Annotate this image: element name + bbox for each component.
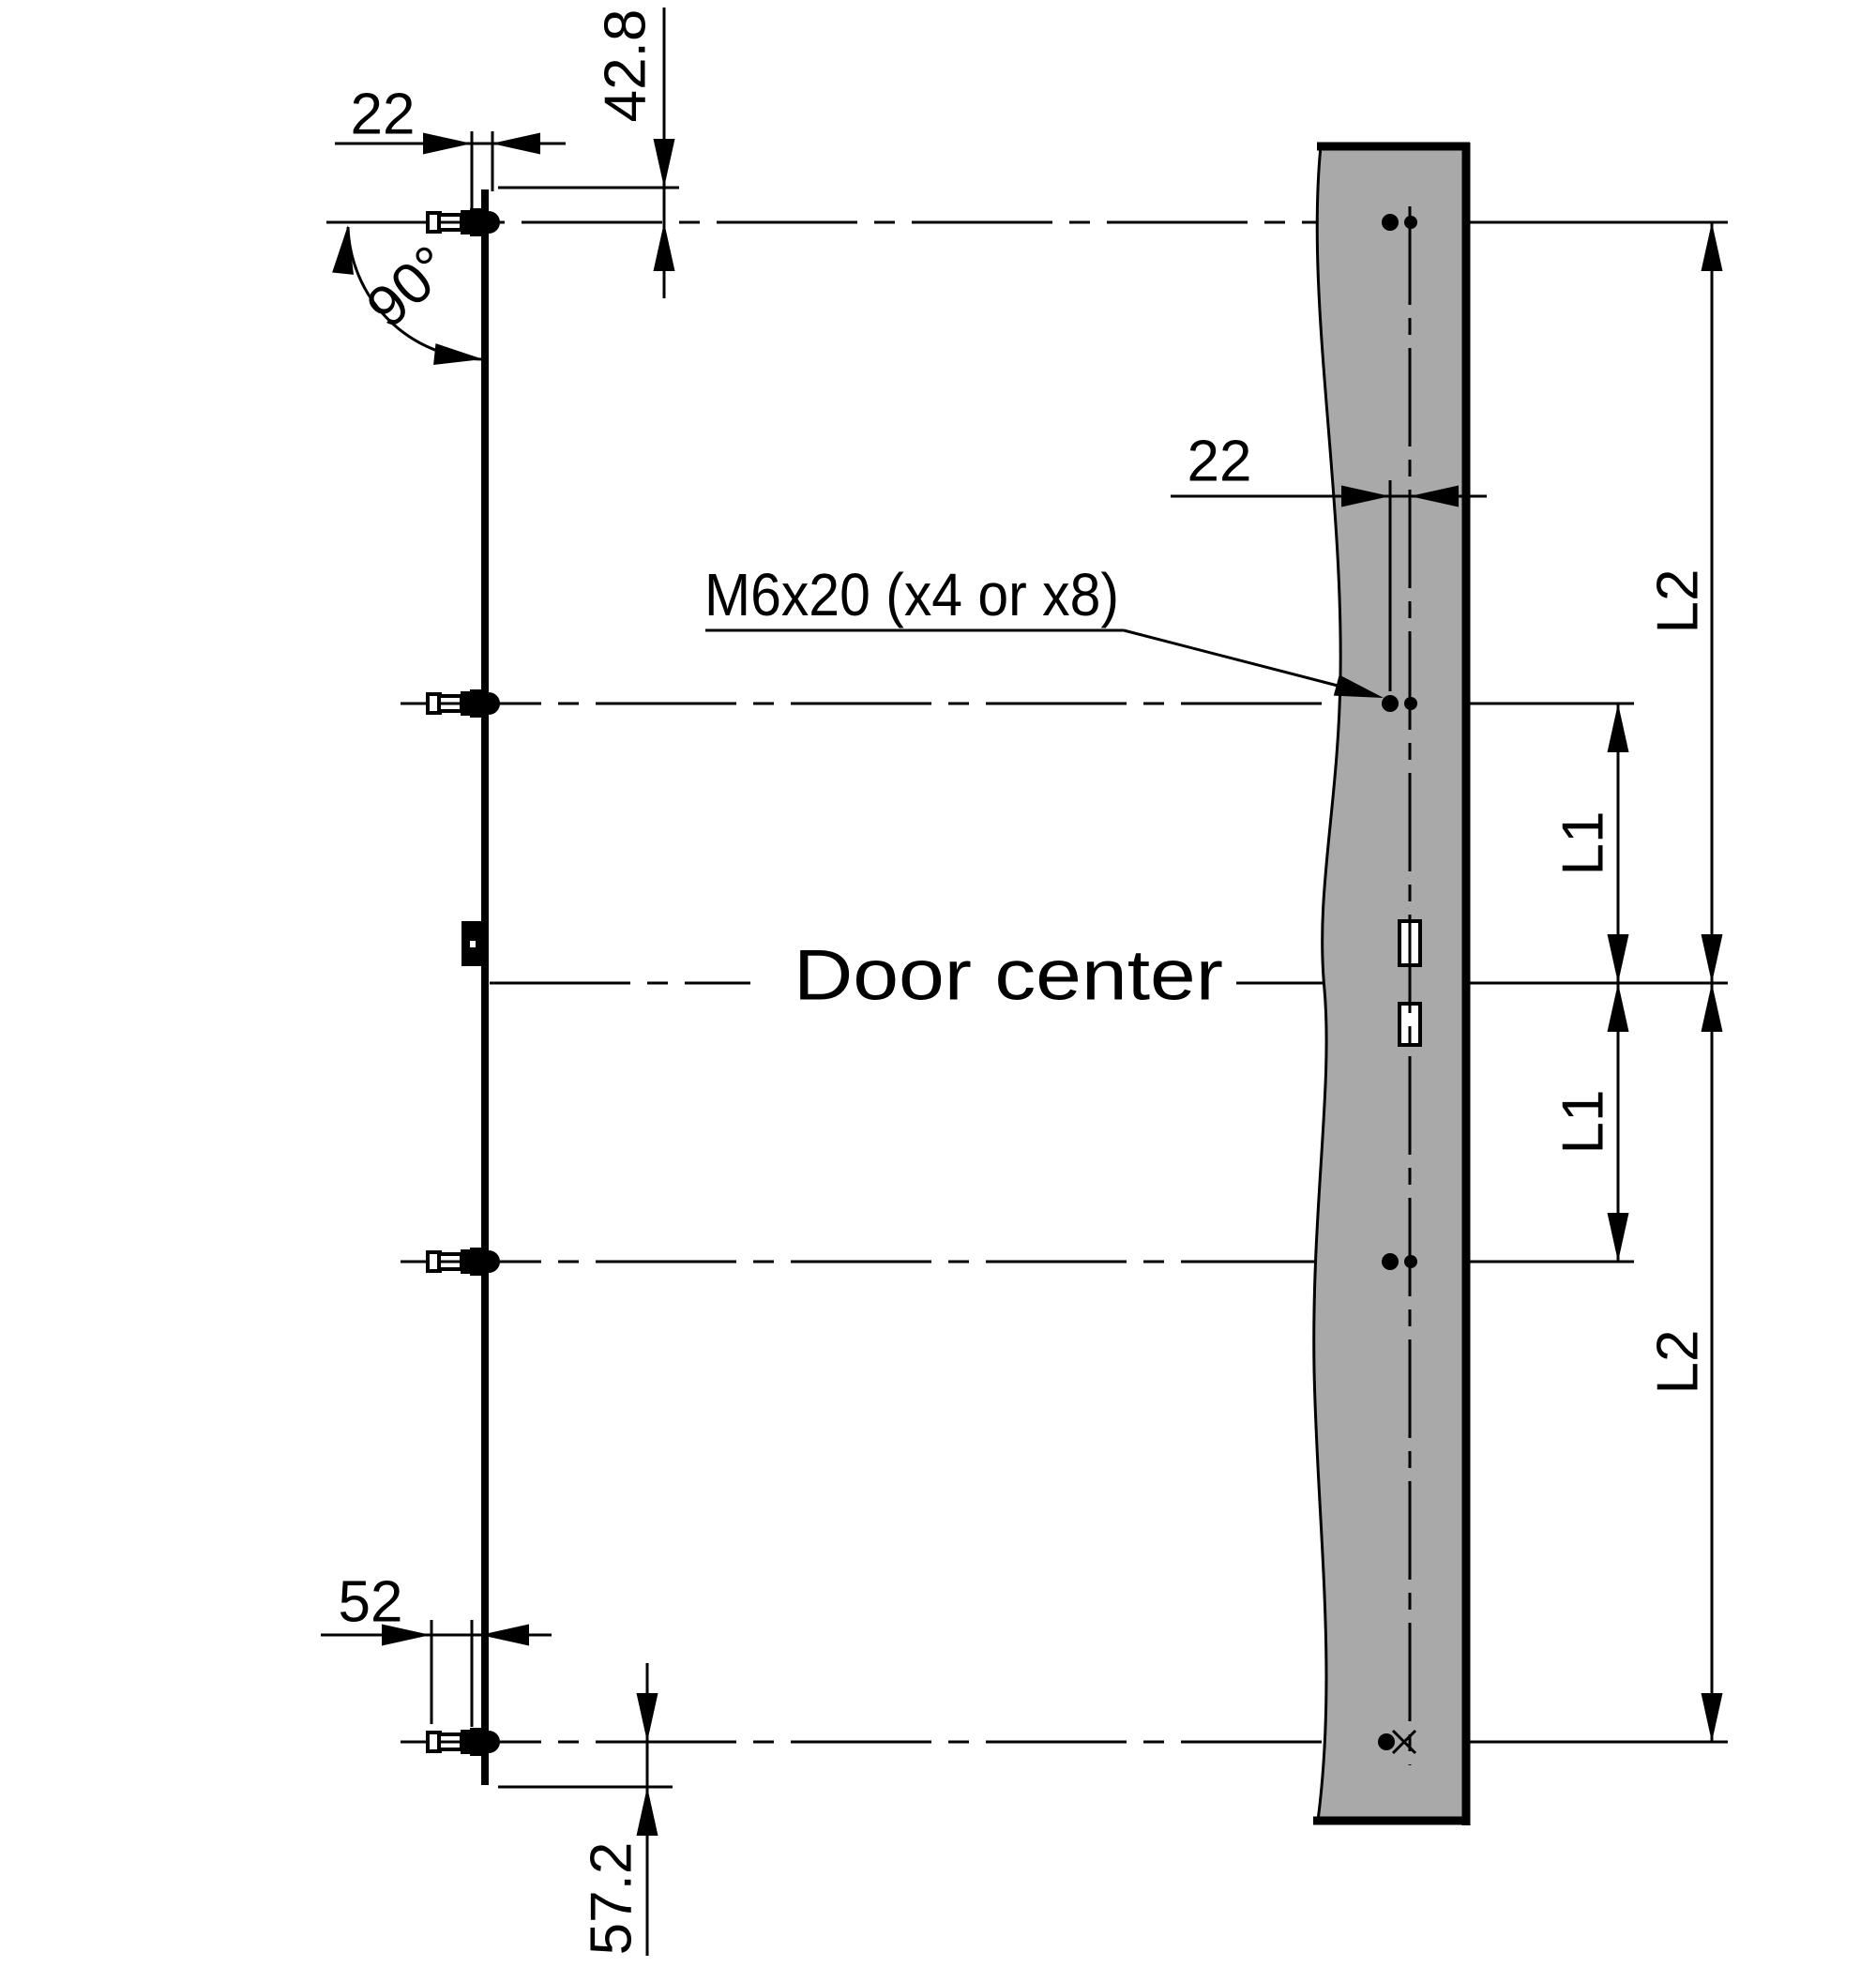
door-edge (461, 188, 679, 1787)
dim-l1-upper-value: L1 (1551, 811, 1616, 876)
screw-hole-row3 (1382, 1253, 1399, 1270)
screw-callout: M6x20 (x4 or x8) (704, 561, 1386, 708)
angle-90: 90° (332, 224, 484, 371)
door-center-label: Door center (794, 936, 1223, 1016)
dimension-l1-upper: L1 (1551, 704, 1629, 983)
leader-line (1124, 630, 1341, 687)
dimension-52: 52 (321, 1570, 552, 1728)
weld-bolt-row4 (428, 1728, 500, 1756)
angle-90-value: 90° (355, 234, 463, 340)
centerline-point-row1 (1404, 216, 1417, 229)
screw-hole-row2 (1382, 695, 1399, 712)
drawing-canvas: 22 42.8 90° M6x20 (x4 or x8) 22 Door cen… (0, 0, 1876, 1967)
dimension-l2-upper: L2 (1646, 222, 1723, 983)
screw-hole-row4 (1378, 1733, 1395, 1750)
weld-bolt-row2 (428, 689, 500, 718)
lock-block-pin (470, 941, 476, 947)
centerline-point-row3 (1404, 1255, 1417, 1268)
weld-bolt-row1 (428, 208, 500, 236)
dim-l1-lower-value: L1 (1551, 1090, 1616, 1155)
screw-spec-label: M6x20 (x4 or x8) (704, 561, 1119, 628)
centerline-point-row2 (1404, 697, 1417, 710)
dimension-22-top: 22 (335, 83, 566, 215)
dimension-l2-lower: L2 (1646, 983, 1723, 1742)
dimension-57-2: 57.2 (580, 1663, 658, 1956)
dim-22-panel-value: 22 (1188, 430, 1252, 494)
dim-42-8-value: 42.8 (594, 9, 658, 123)
side-panel-fill (1314, 146, 1466, 1821)
dim-57-2-value: 57.2 (580, 1842, 644, 1956)
dimension-42-8: 42.8 (594, 8, 675, 298)
dim-52-value: 52 (339, 1570, 403, 1635)
weld-bolts (428, 208, 500, 1756)
screw-hole-row1 (1382, 214, 1399, 231)
side-panel (1313, 143, 1470, 1825)
weld-bolt-row3 (428, 1248, 500, 1276)
dim-l2-upper-value: L2 (1646, 569, 1711, 634)
dimension-l1-lower: L1 (1551, 983, 1629, 1262)
installation-drawing: 22 42.8 90° M6x20 (x4 or x8) 22 Door cen… (0, 0, 1876, 1967)
dim-22-top-value: 22 (351, 83, 416, 147)
dim-l2-lower-value: L2 (1646, 1330, 1711, 1395)
